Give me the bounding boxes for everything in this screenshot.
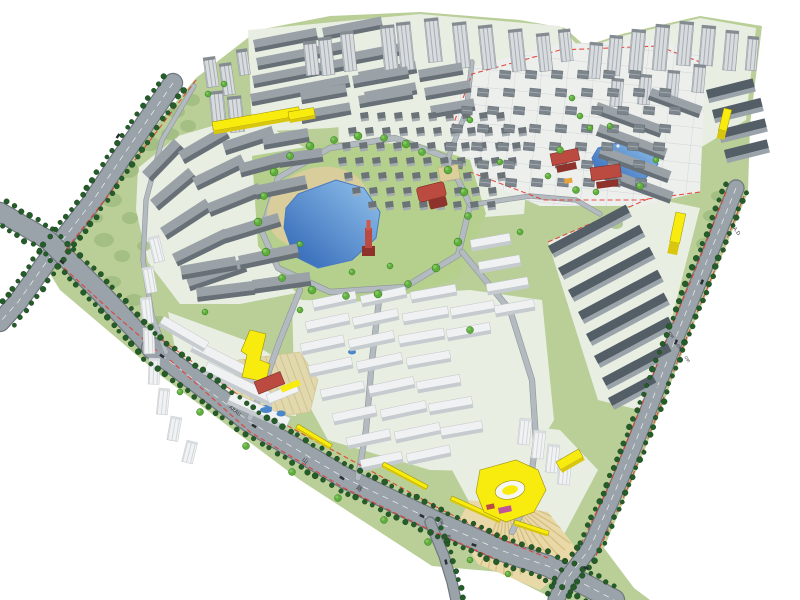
masterplan-canvas: R.A.DARAU山路OMOMOMROOMRO — [0, 0, 800, 600]
pagoda-cap — [367, 220, 371, 230]
masterplan-rendering: R.A.DARAU山路OMOMOMROOMRO — [0, 0, 800, 600]
kindergarten-pool-1 — [260, 407, 272, 413]
pagoda-shaft — [365, 228, 372, 248]
kindergarten-pool-2 — [277, 412, 286, 417]
road-label: OM — [683, 355, 691, 364]
